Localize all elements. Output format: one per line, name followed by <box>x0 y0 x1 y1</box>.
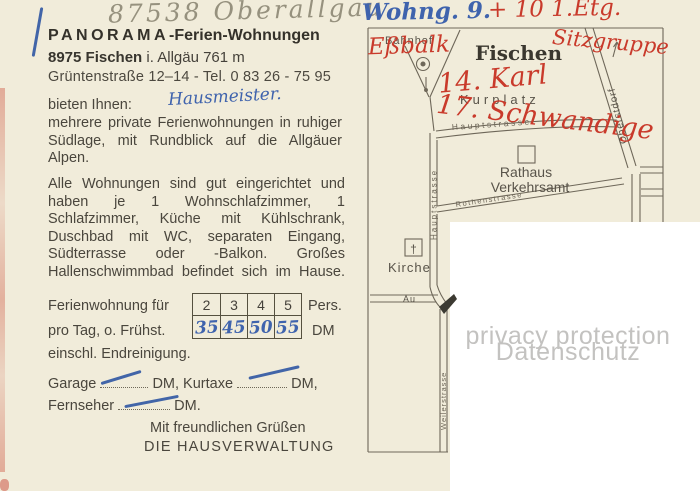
price-cell: 50 <box>247 315 274 338</box>
scan-corner-artifact <box>0 479 9 491</box>
church-cross-icon: † <box>410 242 417 256</box>
price-cell: 55 <box>274 315 301 338</box>
price-row1-label: Ferienwohnung für <box>48 298 169 314</box>
map-label-au: Au <box>403 294 416 304</box>
persons-cell: 4 <box>247 294 274 315</box>
garage-unit: DM, Kurtaxe <box>152 376 233 392</box>
fees-line-1: Garage DM, Kurtaxe DM, <box>48 375 318 392</box>
intro-label: bieten Ihnen: <box>48 97 132 113</box>
station-signal-icon <box>425 89 428 92</box>
business-title: PANORAMA-Ferien-Wohnungen <box>48 27 320 45</box>
business-title-rest: -Ferien-Wohnungen <box>169 27 320 44</box>
road-south <box>632 174 640 222</box>
persons-cell: 5 <box>274 294 301 315</box>
station-icon <box>421 62 425 66</box>
map-label-rothenstrasse: Rothenstrasse <box>455 190 523 209</box>
map-label-kirche: Kirche <box>388 260 431 275</box>
price-cell: 45 <box>220 315 247 338</box>
postcard-scan: 87538 Oberallgäu PANORAMA-Ferien-Wohnung… <box>0 0 700 491</box>
scan-edge-artifact <box>0 88 5 472</box>
privacy-watermark: privacy protection Datenschutz <box>448 328 688 360</box>
persons-cell: 3 <box>220 294 247 315</box>
tv-unit: DM. <box>174 398 201 414</box>
map-label-hauptstrasse-v: Hauptstrasse <box>430 169 439 240</box>
rathaus-building-icon <box>518 146 535 163</box>
persons-unit: Pers. <box>308 298 342 314</box>
map-label-rathaus: Rathaus <box>500 164 552 180</box>
garage-label: Garage <box>48 376 96 392</box>
address-town: 8975 Fischen <box>48 49 142 66</box>
annotation-red-note-1: Eßbalk <box>368 32 451 61</box>
kurtaxe-unit: DM, <box>291 376 318 392</box>
closing-greeting: Mit freundlichen Grüßen <box>150 420 306 436</box>
address-region: i. Allgäu 761 m <box>142 49 245 66</box>
business-title-emphasis: PANORAMA <box>48 27 169 44</box>
price-row3-label: einschl. Endreinigung. <box>48 346 191 362</box>
road-stubs <box>640 167 663 196</box>
annotation-apartment-blue: Wohng. 9. <box>362 0 491 26</box>
persons-cell: 2 <box>193 294 220 315</box>
tv-label: Fernseher <box>48 398 114 414</box>
annotation-apartment-red: + 10 1.Etg. <box>488 0 622 23</box>
price-cell: 35 <box>193 315 220 338</box>
price-table: 2 3 4 5 35 45 50 55 <box>192 293 302 339</box>
pencil-postal-note: 87538 Oberallgäu <box>108 0 385 29</box>
address-line: 8975 Fischen i. Allgäu 761 m <box>48 49 245 66</box>
handwritten-intro-note: Hausmeister. <box>168 84 282 110</box>
street-phone-line: Grüntenstraße 12–14 - Tel. 0 83 26 - 75 … <box>48 69 331 85</box>
closing-signature: DIE HAUSVERWALTUNG <box>144 439 335 455</box>
price-row2-label: pro Tag, o. Frühst. <box>48 323 165 339</box>
paragraph-offer: mehrere private Ferienwohnungen in ruhig… <box>48 115 342 185</box>
paragraph-description: Alle Wohnungen sind gut eingerichtet und… <box>48 176 345 299</box>
fill-in-line <box>237 375 287 388</box>
map-label-weilerstrasse: Weilerstrasse <box>439 372 448 430</box>
blue-pen-stroke <box>32 7 44 57</box>
price-unit: DM <box>312 323 335 339</box>
